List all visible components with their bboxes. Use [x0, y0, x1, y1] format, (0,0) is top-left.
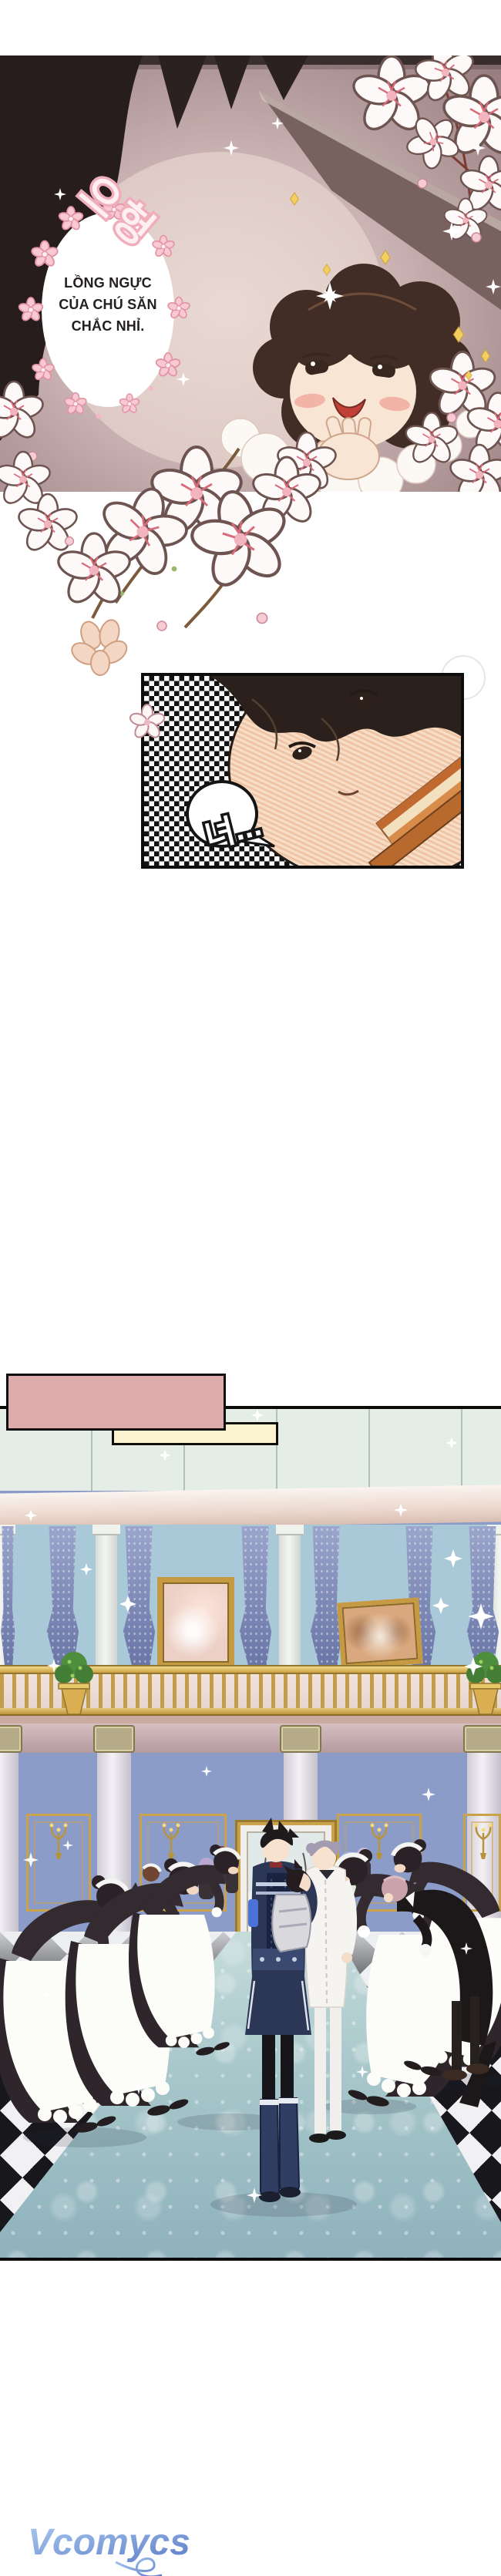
watermark-logo: Vcomycs	[23, 2507, 193, 2576]
border-flower	[128, 701, 166, 740]
watermark-text: Vcomycs	[28, 2522, 190, 2563]
characters	[0, 1409, 501, 2258]
peach-petal-cluster	[68, 618, 130, 675]
sfx-korean-small: 녀...	[199, 805, 330, 878]
bubble-line-1: LỒNG NGỰC	[40, 273, 176, 294]
sfx-korean-text: 으헝	[71, 167, 164, 256]
bubble-line-2: CỦA CHÚ SĂN	[40, 294, 176, 316]
caption-box-pink	[6, 1374, 226, 1431]
panel-palace-hall	[0, 1406, 501, 2261]
bubble-line-3: CHẮC NHỈ.	[40, 316, 176, 338]
blossom-branch-overflow	[0, 425, 347, 684]
manga-page: 으헝 LỒNG NGỰC CỦA CHÚ SĂN CHẮC NHỈ.	[0, 0, 501, 2576]
sfx-korean-small-text: 녀...	[201, 805, 265, 854]
speech-bubble-text: LỒNG NGỰC CỦA CHÚ SĂN CHẮC NHỈ.	[40, 273, 176, 338]
